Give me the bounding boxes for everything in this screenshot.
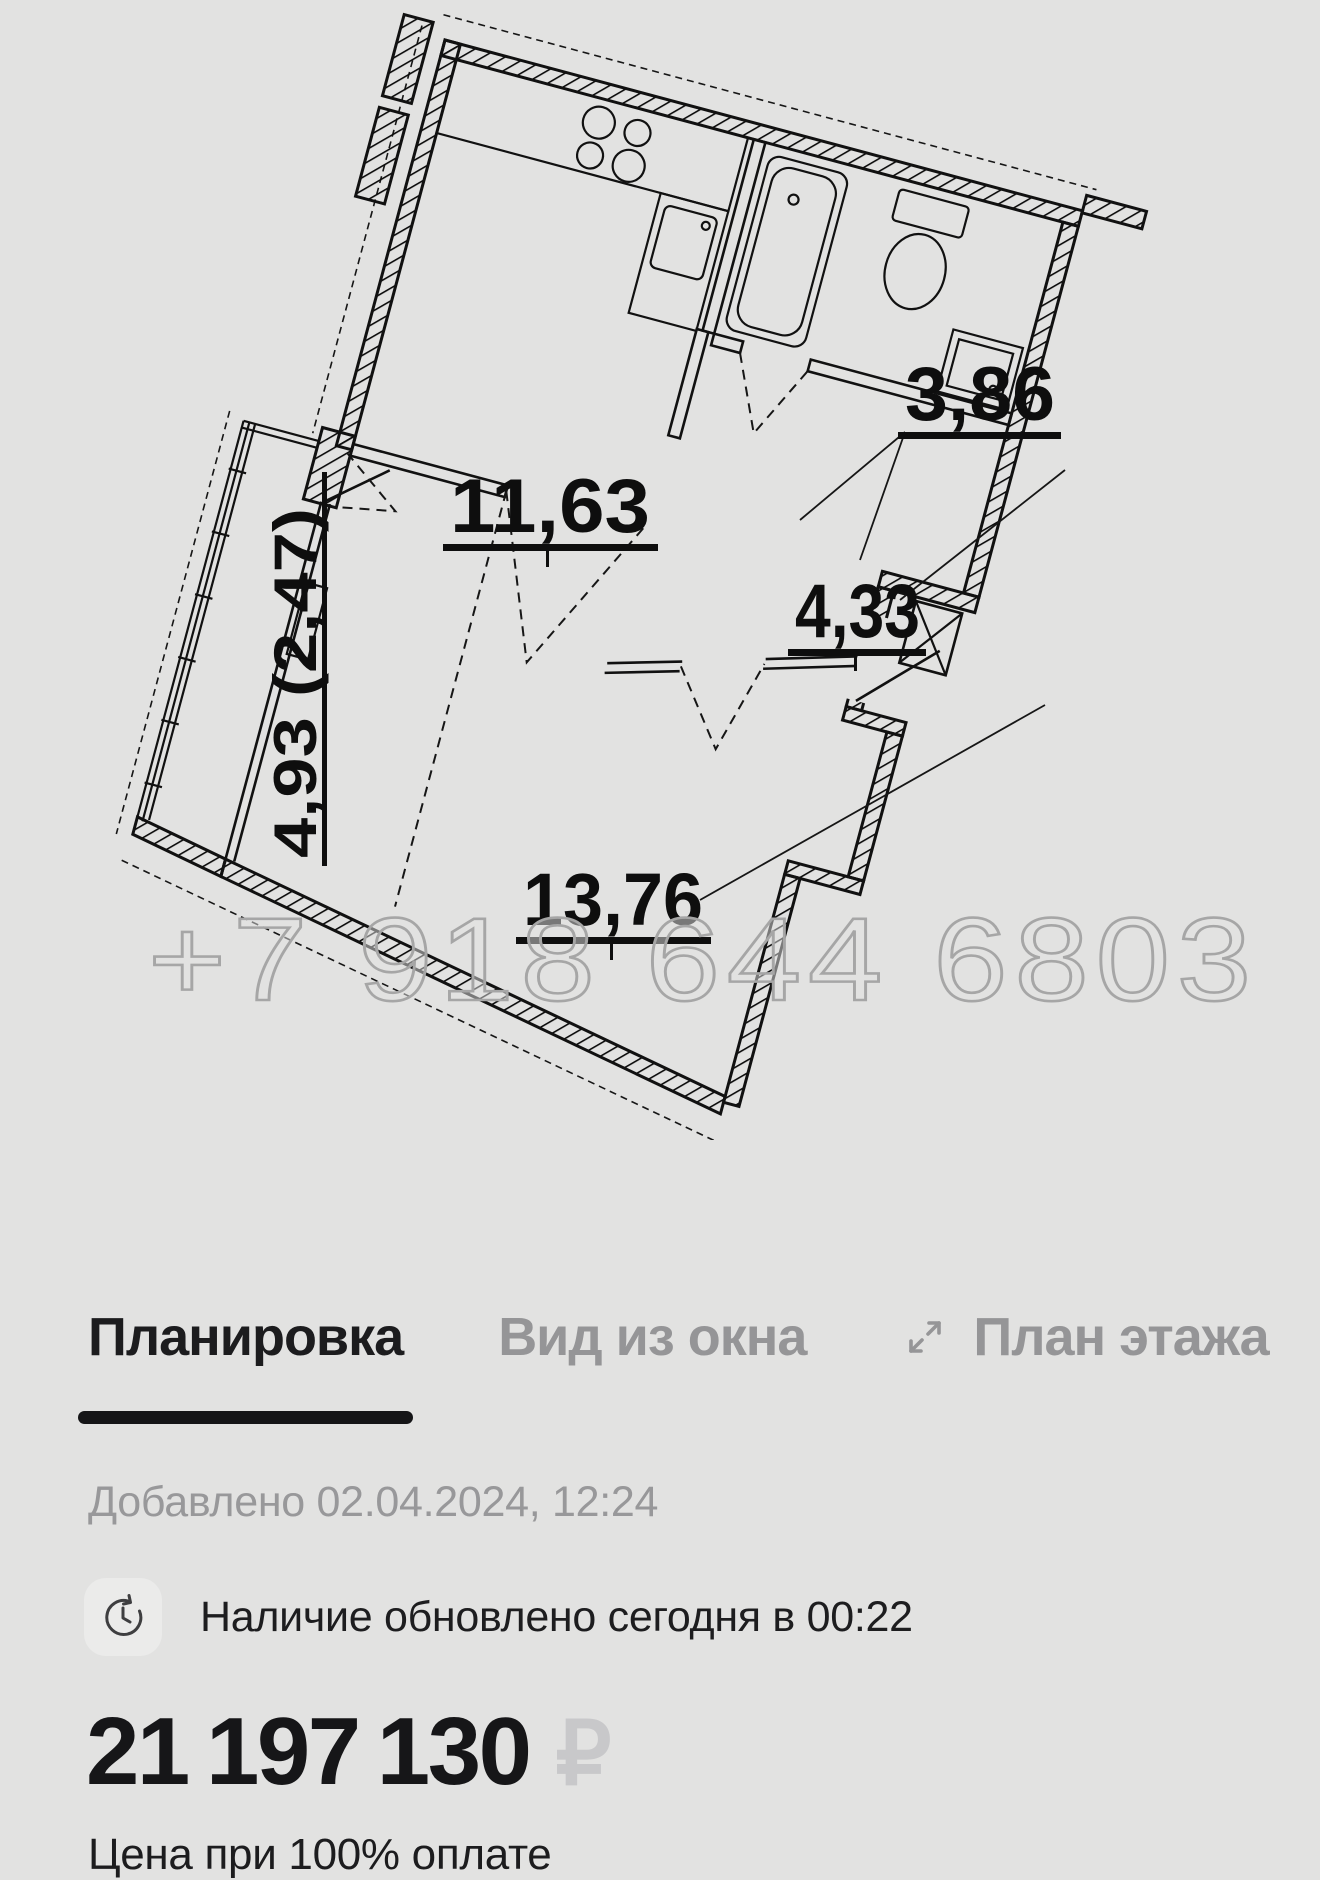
- room-area-balcony: 4,93 (2,47): [262, 508, 329, 858]
- floor-plan-drawing: 11,63 3,86 4,33 13,76 4,93 (2,47) +7 918…: [0, 0, 1320, 1140]
- bathroom-door-swing: [721, 353, 808, 443]
- ruble-sign: ₽: [555, 1704, 611, 1804]
- kitchen-counter: [405, 60, 748, 331]
- toilet-icon: [870, 189, 969, 318]
- tab-layout[interactable]: Планировка: [88, 1308, 403, 1424]
- active-tab-indicator: [78, 1411, 413, 1424]
- tab-window-view-label: Вид из окна: [498, 1308, 806, 1366]
- price-value: 21 197 130: [86, 1702, 529, 1802]
- hall-door-swing: [663, 643, 765, 755]
- watermark-phone: +7 918 644 6803: [148, 894, 1258, 1026]
- price-row: 21 197 130 ₽: [86, 1702, 1320, 1804]
- room-area-bathroom: 3,86: [905, 352, 1055, 437]
- availability-badge: [84, 1578, 162, 1656]
- wall-balcony-bottom: [128, 817, 230, 877]
- tab-layout-label: Планировка: [88, 1308, 403, 1366]
- floor-plan-image[interactable]: 11,63 3,86 4,33 13,76 4,93 (2,47) +7 918…: [0, 0, 1320, 1140]
- wall-top: [441, 40, 1083, 226]
- clock-refresh-icon: [100, 1594, 146, 1640]
- price-note: Цена при 100% оплате: [88, 1830, 1320, 1880]
- kitchen-sink-icon: [649, 205, 718, 281]
- tab-floor-plan[interactable]: План этажа: [901, 1308, 1268, 1424]
- added-date: Добавлено 02.04.2024, 12:24: [88, 1476, 1320, 1528]
- availability-text: Наличие обновлено сегодня в 00:22: [200, 1593, 913, 1642]
- room-area-labels: 11,63 3,86 4,33 13,76 4,93 (2,47): [262, 352, 1061, 960]
- tab-floor-plan-label: План этажа: [973, 1308, 1268, 1366]
- room-area-hallway: 4,33: [795, 569, 920, 654]
- availability-row: Наличие обновлено сегодня в 00:22: [84, 1578, 1320, 1656]
- room-area-kitchen: 11,63: [450, 464, 650, 549]
- gallery-tabs: Планировка Вид из окна План этажа: [0, 1308, 1320, 1424]
- tab-window-view[interactable]: Вид из окна: [498, 1308, 806, 1424]
- expand-icon: [901, 1313, 949, 1361]
